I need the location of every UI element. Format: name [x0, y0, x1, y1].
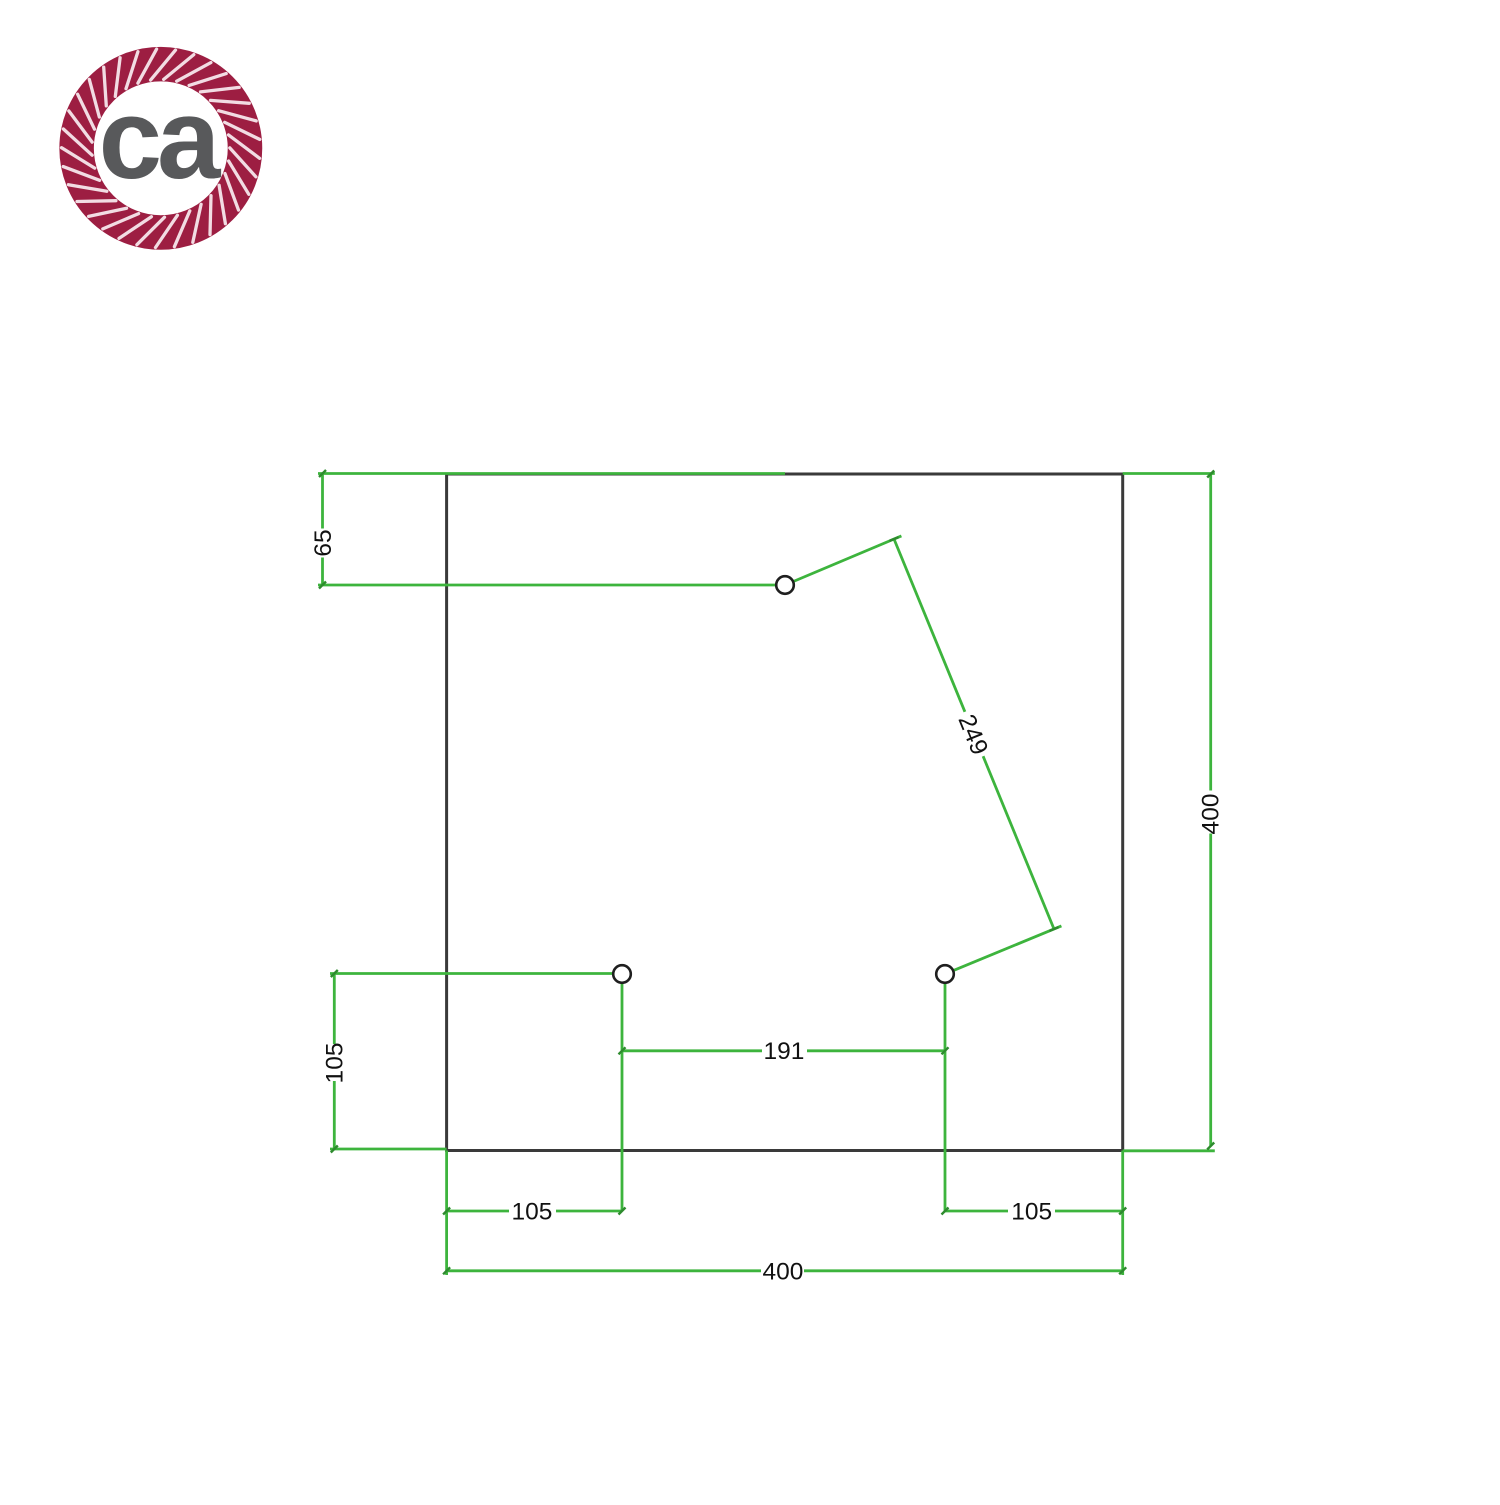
svg-text:400: 400 — [1197, 794, 1224, 835]
svg-text:ca: ca — [99, 76, 222, 203]
svg-text:65: 65 — [310, 529, 337, 556]
svg-text:105: 105 — [512, 1198, 553, 1225]
svg-text:400: 400 — [763, 1258, 804, 1285]
svg-text:105: 105 — [1011, 1198, 1052, 1225]
svg-text:105: 105 — [321, 1043, 348, 1084]
svg-text:191: 191 — [764, 1038, 805, 1065]
